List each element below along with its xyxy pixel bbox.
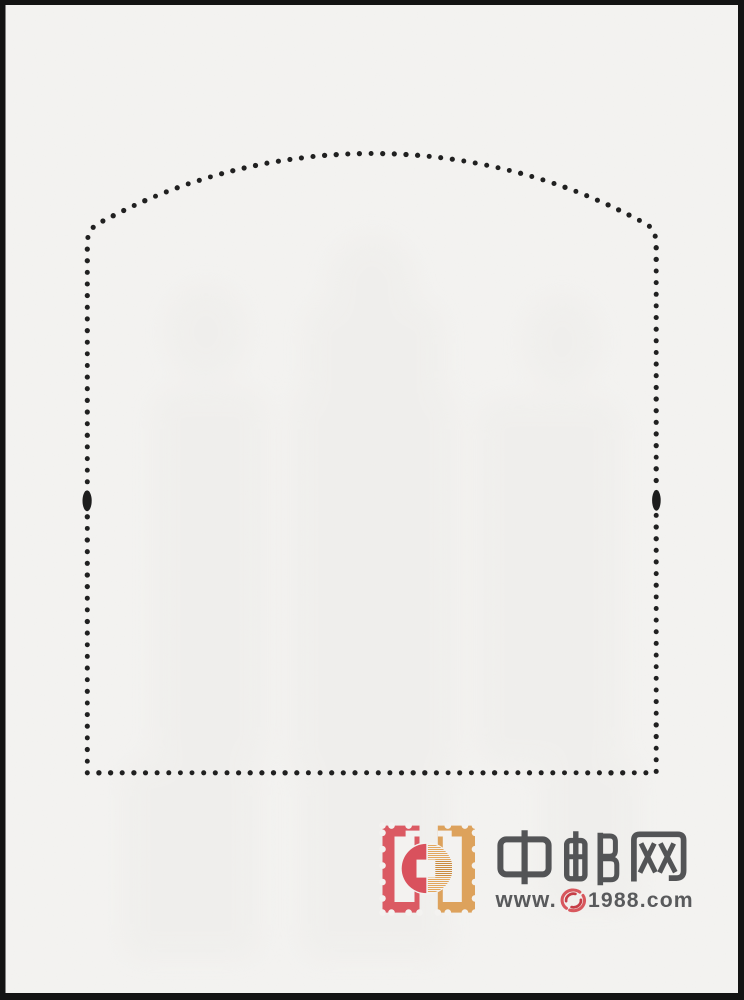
svg-text:1988.com: 1988.com — [588, 889, 694, 912]
svg-text:www.: www. — [495, 887, 557, 912]
